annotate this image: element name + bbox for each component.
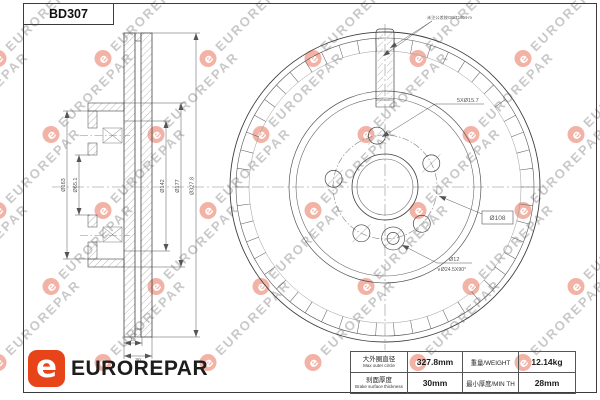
brand-logo-icon: e	[28, 350, 65, 387]
table-row: 刹面厚度 Brake surface thickness 30mm 最小厚度/M…	[351, 373, 576, 394]
thickness-label: 刹面厚度 Brake surface thickness	[351, 373, 408, 394]
thickness-label-en: Brake surface thickness	[353, 384, 405, 389]
max-outer-label-cn: 大外圈直径	[353, 356, 405, 363]
leader-lines	[382, 21, 513, 263]
technical-drawing: Ø163 Ø65.1 Ø142 Ø177 Ø327.8 19 30	[0, 0, 600, 400]
section-view	[80, 33, 152, 337]
dim-hat-outer: Ø177	[175, 179, 181, 192]
lug-holes	[325, 127, 441, 243]
dim-hat-inner: Ø163	[61, 178, 67, 191]
drawing-page: eEUROREPAReEUROREPAReEUROREPAReEUROREPAR…	[0, 0, 600, 400]
dim-outer-diameter: Ø327.8	[190, 177, 196, 195]
bolt-circle-label: Ø108	[490, 215, 506, 222]
table-row: 大外圈直径 Max outer circle 327.8mm 重量/WEIGHT…	[351, 352, 576, 373]
min-thickness-value: 28mm	[519, 373, 576, 394]
thickness-label-cn: 刹面厚度	[353, 377, 405, 384]
brand-name: EUROREPAR	[71, 357, 208, 381]
front-view-labels: 未注公差按GB/T1804-m 5XØ15.7 Ø108 Ø12 ∨Ø24.5X…	[427, 14, 506, 273]
min-thickness-label: 最小厚度/MIN TH	[463, 373, 519, 394]
pin-hole-label: Ø12	[449, 257, 459, 263]
front-view	[230, 21, 540, 350]
max-outer-label: 大外圈直径 Max outer circle	[351, 352, 408, 373]
max-outer-label-en: Max outer circle	[353, 363, 405, 368]
stud-note: 未注公差按GB/T1804-m	[427, 14, 472, 21]
brand-logo: e EUROREPAR	[28, 350, 208, 387]
countersink-label: ∨Ø24.5X90°	[437, 267, 466, 273]
dim-inner-ring: Ø142	[160, 179, 166, 192]
locating-hole	[382, 227, 405, 250]
dim-hat-depth: 19	[130, 337, 136, 342]
lug-holes-label: 5XØ15.7	[457, 98, 479, 104]
weight-label: 重量/WEIGHT	[463, 352, 519, 373]
thickness-value: 30mm	[408, 373, 463, 394]
max-outer-value: 327.8mm	[408, 352, 463, 373]
spec-table: 大外圈直径 Max outer circle 327.8mm 重量/WEIGHT…	[350, 351, 576, 394]
weight-value: 12.14kg	[519, 352, 576, 373]
part-number: BD307	[23, 3, 114, 25]
dim-center-bore: Ø65.1	[73, 178, 79, 193]
